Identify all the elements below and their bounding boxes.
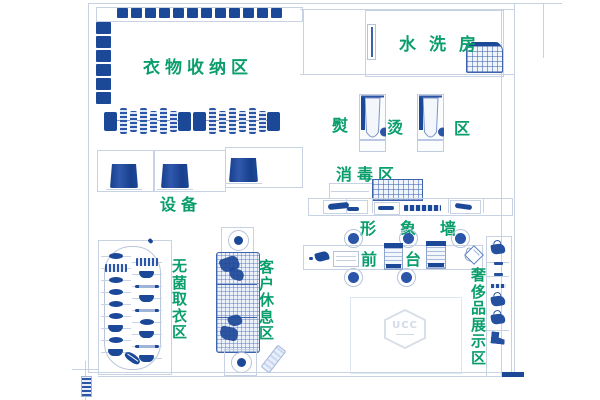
crow-icon: [101, 263, 131, 273]
crow-icon: [101, 275, 131, 285]
display-item-column: [488, 238, 508, 344]
wall-right-outer: [514, 3, 515, 376]
dbox-icon: [173, 8, 184, 18]
dbox-icon: [201, 8, 212, 18]
rail-cap-icon: [104, 112, 117, 131]
counter-item-icon: [378, 206, 394, 210]
counter-divider: [372, 199, 373, 213]
label-sterile-pickup-area: 无菌取衣区: [171, 258, 188, 341]
hanger-icon: [209, 108, 216, 134]
wall-left: [88, 3, 89, 373]
laundry-floor-plan: 衣物收纳区 设备 水洗房 熨 烫 区 消毒区: [0, 0, 600, 400]
ditem-icon: [490, 243, 505, 255]
hanger-icon: [170, 111, 177, 132]
crow-icon: [132, 281, 162, 291]
ditem-icon: [494, 262, 503, 265]
machine-base-line: [225, 183, 262, 184]
door-icon: [367, 24, 376, 60]
crow-icon: [132, 317, 162, 327]
machine-base-line: [106, 189, 142, 190]
dbox-icon: [229, 8, 240, 18]
dbox-icon: [96, 50, 111, 62]
conveyor-hanger-column: [132, 257, 162, 363]
dbox-icon: [96, 64, 111, 76]
dbox-icon: [243, 8, 254, 18]
rail-cap-icon: [193, 112, 206, 131]
rail-cap-icon: [267, 112, 280, 131]
label-ironing-char: 熨: [332, 112, 348, 136]
dbox-icon: [96, 36, 111, 48]
label-ironing-char: 烫: [387, 114, 403, 138]
wall-top: [88, 3, 562, 4]
machine-icon: [161, 164, 189, 188]
dbox-icon: [96, 78, 111, 90]
telephone-dot-icon: [309, 257, 313, 260]
crow-icon: [132, 269, 162, 279]
ditem-icon: [490, 295, 505, 307]
dbox-icon: [159, 8, 170, 18]
hanger-icon: [249, 108, 256, 134]
paper-tray-icon: [333, 251, 359, 267]
label-luxury-display-area: 奢侈品展示区: [470, 267, 487, 366]
label-customer-rest-area: 客户休息区: [258, 259, 275, 342]
hanger-rail-icon: [120, 108, 177, 134]
dbox-icon: [96, 92, 111, 104]
machine-base-line: [157, 189, 193, 190]
storage-box-row: [117, 8, 282, 18]
crow-icon: [132, 257, 162, 267]
crow-icon: [132, 329, 162, 339]
side-table-plate-icon: [231, 352, 252, 373]
crow-icon: [101, 335, 131, 345]
wall-exterior-stub: [543, 3, 544, 58]
dbox-icon: [271, 8, 282, 18]
hanger-icon: [239, 111, 246, 132]
hanger-icon: [259, 111, 266, 132]
crow-icon: [101, 323, 131, 333]
counter-divider: [483, 199, 484, 213]
ditem-icon: [490, 313, 505, 325]
conveyor-hanger-column: [101, 251, 131, 357]
dbox-icon: [96, 22, 111, 34]
label-front-desk: 前台: [361, 246, 449, 270]
ironing-board-icon: [359, 94, 386, 152]
logo-underline: [396, 334, 414, 335]
machine-icon: [110, 164, 138, 188]
crow-icon: [132, 305, 162, 315]
hanger-rail-icon: [209, 108, 266, 134]
hanger-icon: [130, 111, 137, 132]
hanger-icon: [140, 108, 147, 134]
label-washing-room: 水洗房: [399, 30, 489, 55]
crow-icon: [101, 311, 131, 321]
dbox-icon: [131, 8, 142, 18]
crow-icon: [101, 299, 131, 309]
label-clothing-storage-area: 衣物收纳区: [143, 53, 253, 78]
crow-icon: [101, 287, 131, 297]
sofa-divider: [217, 284, 257, 285]
stool-icon: [397, 268, 416, 287]
side-table-plate-icon: [228, 230, 249, 251]
hanger-icon: [229, 108, 236, 134]
hanger-icon: [120, 108, 127, 134]
ironing-board-icon: [417, 94, 444, 152]
crow-icon: [132, 293, 162, 303]
counter-item-icon: [347, 207, 359, 211]
hanger-icon: [219, 111, 226, 132]
dbox-icon: [117, 8, 128, 18]
ditem-icon: [494, 273, 503, 276]
counter-divider: [448, 199, 449, 213]
ucc-logo-text: UCC: [383, 320, 427, 331]
hanger-icon: [160, 108, 167, 134]
dbox-icon: [257, 8, 268, 18]
stool-icon: [344, 268, 363, 287]
ditem-icon: [491, 284, 506, 288]
dimension-marker-icon: [81, 376, 92, 397]
ditem-icon: [490, 331, 505, 344]
dbox-icon: [145, 8, 156, 18]
wall-bottom-inner: [98, 376, 515, 377]
table-edge-line: [331, 191, 369, 192]
counter-item-icon: [404, 205, 441, 211]
rail-cap-icon: [178, 112, 191, 131]
dbox-icon: [187, 8, 198, 18]
machine-icon: [229, 158, 258, 182]
magazine-icon: [261, 345, 287, 374]
storage-box-column: [96, 22, 111, 104]
label-equipment: 设备: [160, 191, 202, 215]
wall-partition-vertical: [303, 9, 304, 75]
display-baseboard: [502, 372, 524, 377]
crow-icon: [101, 251, 131, 261]
hanger-icon: [150, 111, 157, 132]
label-ironing-char: 区: [454, 115, 470, 139]
dbox-icon: [215, 8, 226, 18]
crow-icon: [132, 341, 162, 351]
